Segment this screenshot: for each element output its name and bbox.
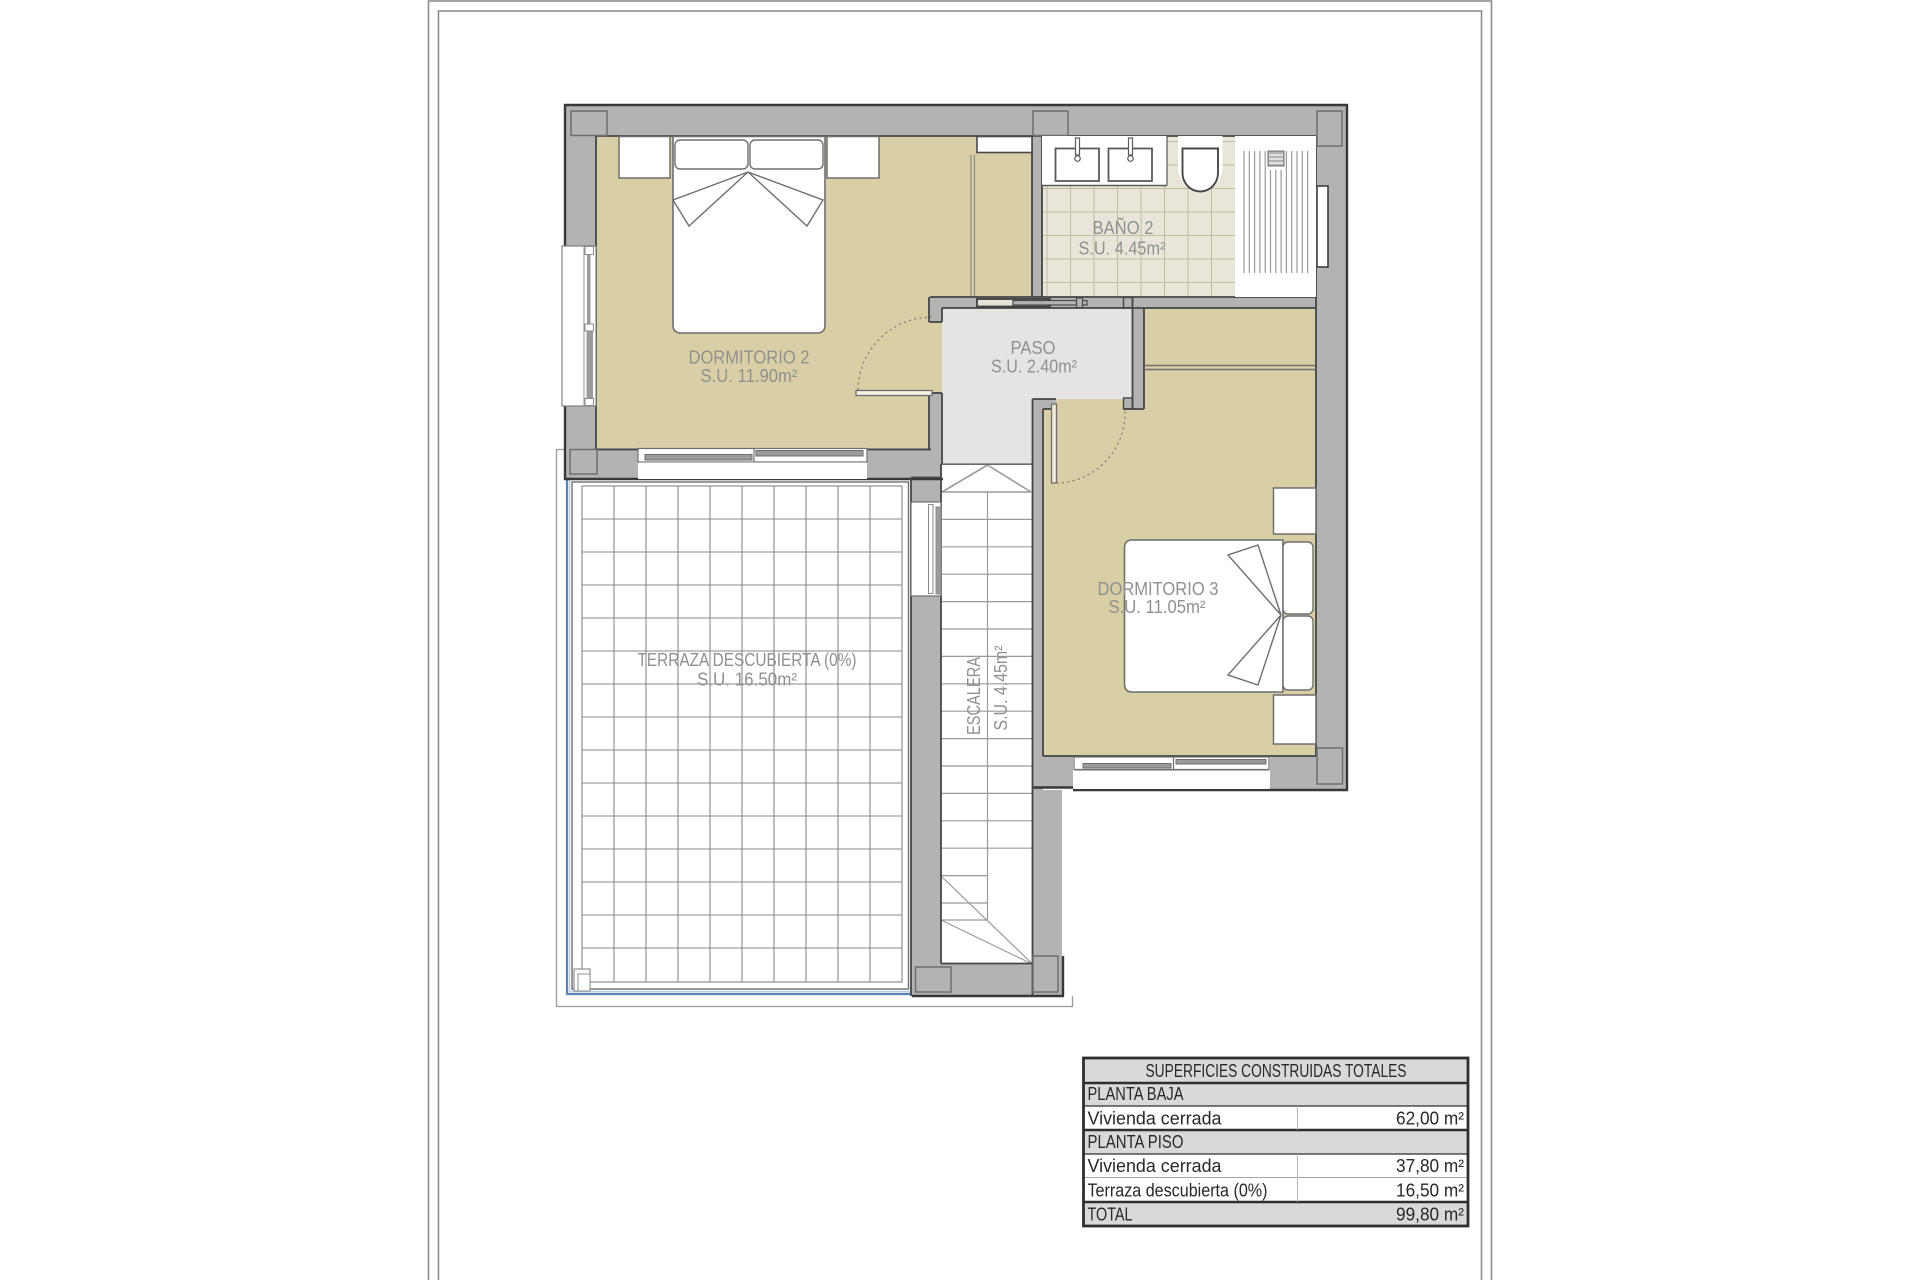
svg-text:S.U. 16.50m²: S.U. 16.50m²	[697, 670, 797, 690]
svg-text:S.U. 11.05m²: S.U. 11.05m²	[1109, 597, 1206, 617]
svg-text:37,80 m²: 37,80 m²	[1396, 1156, 1464, 1176]
svg-text:62,00 m²: 62,00 m²	[1396, 1109, 1464, 1129]
svg-text:Terraza descubierta (0%): Terraza descubierta (0%)	[1088, 1181, 1268, 1201]
svg-text:16,50 m²: 16,50 m²	[1396, 1181, 1464, 1201]
svg-text:Vivienda cerrada: Vivienda cerrada	[1088, 1156, 1223, 1176]
svg-text:S.U. 11.90m²: S.U. 11.90m²	[701, 366, 798, 386]
svg-text:DORMITORIO 2: DORMITORIO 2	[689, 348, 810, 368]
svg-text:BAÑO 2: BAÑO 2	[1093, 217, 1154, 238]
svg-text:ESCALERA: ESCALERA	[964, 657, 984, 735]
svg-text:PLANTA PISO: PLANTA PISO	[1088, 1132, 1184, 1152]
svg-text:SUPERFICIES CONSTRUIDAS TOTALE: SUPERFICIES CONSTRUIDAS TOTALES	[1146, 1061, 1407, 1081]
svg-text:PLANTA BAJA: PLANTA BAJA	[1088, 1084, 1184, 1104]
svg-text:Vivienda cerrada: Vivienda cerrada	[1088, 1109, 1223, 1129]
svg-text:99,80 m²: 99,80 m²	[1396, 1205, 1464, 1225]
svg-text:TOTAL: TOTAL	[1088, 1205, 1133, 1225]
svg-text:S.U. 4.45m²: S.U. 4.45m²	[991, 645, 1011, 730]
svg-text:S.U. 2.40m²: S.U. 2.40m²	[991, 357, 1077, 377]
svg-text:TERRAZA DESCUBIERTA (0%): TERRAZA DESCUBIERTA (0%)	[638, 650, 857, 670]
svg-text:DORMITORIO 3: DORMITORIO 3	[1098, 579, 1219, 599]
svg-text:S.U. 4.45m²: S.U. 4.45m²	[1079, 239, 1166, 259]
svg-text:PASO: PASO	[1011, 338, 1056, 358]
